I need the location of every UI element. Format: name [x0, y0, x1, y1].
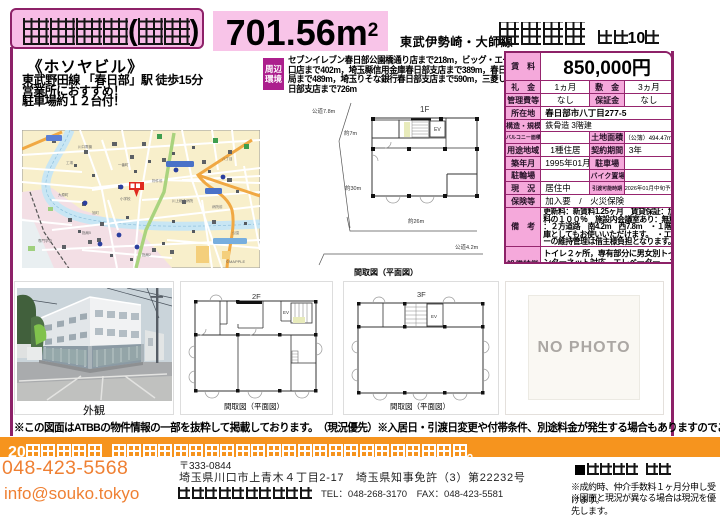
svg-text:旭町: 旭町 — [92, 210, 99, 215]
svg-text:一番町: 一番町 — [118, 162, 129, 167]
svg-text:大原町: 大原町 — [58, 192, 69, 197]
svg-text:物件前: 物件前 — [152, 178, 163, 183]
svg-text:EV: EV — [431, 314, 437, 319]
svg-text:指扇2: 指扇2 — [142, 252, 151, 257]
svg-text:公園: 公園 — [232, 230, 239, 235]
svg-text:約26m: 約26m — [408, 217, 425, 225]
svg-text:八丁目: 八丁目 — [222, 156, 233, 161]
svg-text:間取図（平面図）: 間取図（平面図） — [354, 267, 418, 277]
svg-text:約7m: 約7m — [344, 129, 358, 137]
svg-text:川口電機: 川口電機 — [78, 144, 92, 149]
svg-text:3F: 3F — [417, 290, 426, 299]
svg-text:間取図（平面図）: 間取図（平面図） — [390, 402, 450, 411]
svg-text:公道7.8m: 公道7.8m — [312, 107, 336, 115]
svg-text:小学校: 小学校 — [120, 196, 131, 201]
svg-text:病院前: 病院前 — [212, 204, 223, 209]
svg-text:EV: EV — [283, 310, 289, 315]
svg-text:©MAPPLE: ©MAPPLE — [226, 259, 246, 264]
svg-text:川上総合病院: 川上総合病院 — [172, 198, 193, 203]
svg-text:2F: 2F — [252, 292, 261, 301]
svg-text:公道4.2m: 公道4.2m — [455, 243, 479, 251]
svg-text:EV: EV — [434, 127, 441, 133]
svg-text:専門学校: 専門学校 — [38, 238, 52, 243]
svg-text:指扇5: 指扇5 — [82, 230, 91, 235]
svg-text:1F: 1F — [420, 105, 429, 114]
svg-text:工場: 工場 — [66, 160, 73, 165]
svg-text:間取図（平面図）: 間取図（平面図） — [224, 402, 284, 411]
svg-text:約30m: 約30m — [345, 184, 362, 192]
